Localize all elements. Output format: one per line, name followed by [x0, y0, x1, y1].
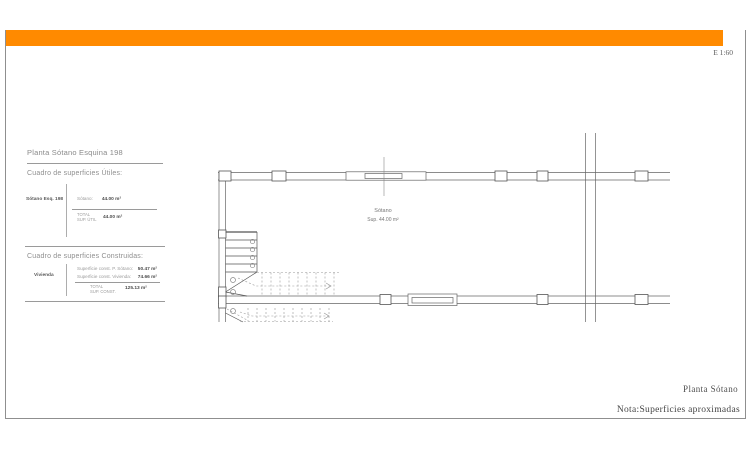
drawing-title: Planta Sótano [683, 384, 738, 394]
top-window [346, 157, 426, 196]
room-area: Sup. 44.00 m² [367, 217, 399, 223]
stairs-upper-flight [226, 232, 258, 322]
wall-pillars [219, 171, 649, 308]
room-label: Sótano Sup. 44.00 m² [367, 208, 399, 223]
stair-posts [231, 239, 255, 313]
bottom-window [408, 294, 457, 306]
stairs-dashed-run [238, 273, 340, 296]
footer-note: Nota:Superficies aproximadas [617, 405, 740, 415]
walls [218, 133, 670, 322]
stair-direction-arrows [324, 283, 331, 319]
stairs-dashed-run-lower [227, 308, 333, 322]
floor-plan: Sótano Sup. 44.00 m² [0, 0, 756, 456]
room-name: Sótano [374, 208, 391, 214]
stairs [226, 232, 341, 322]
